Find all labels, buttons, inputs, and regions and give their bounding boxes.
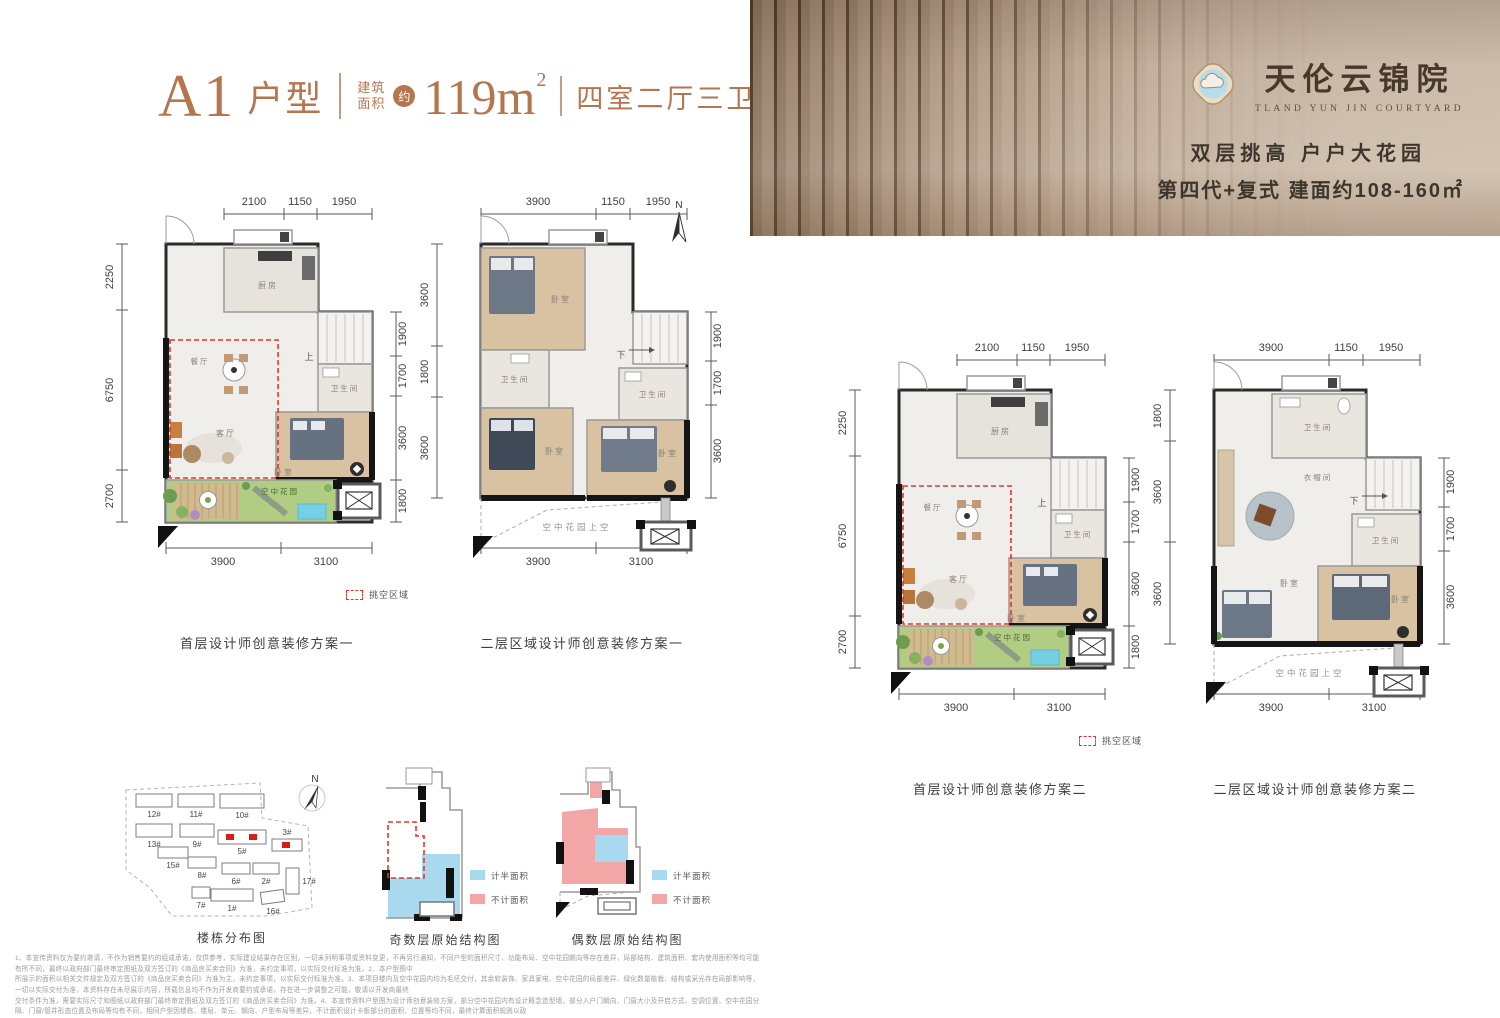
svg-text:3600: 3600: [1130, 572, 1142, 596]
svg-text:3900: 3900: [1259, 342, 1283, 354]
garden-label: 空中花园: [261, 486, 299, 496]
banner-tagline-1: 双层挑高 户户大花园: [1190, 137, 1426, 166]
svg-text:3900: 3900: [1259, 702, 1283, 714]
dim-left: 3600 1800 3600: [419, 244, 443, 498]
svg-text:1800: 1800: [1152, 404, 1164, 428]
svg-text:1#: 1#: [228, 904, 237, 913]
svg-text:1700: 1700: [397, 364, 409, 388]
bathroom-2-label: 卫生间: [1372, 535, 1401, 545]
site-plan: 12# 11# 10# 13# 9# 5# 3# 15# 8# 6# 2# 17…: [112, 760, 352, 946]
svg-text:计半面积: 计半面积: [491, 871, 529, 881]
living-label: 客厅: [949, 574, 969, 584]
site-plan-caption: 楼栋分布图: [112, 929, 352, 946]
stairs-up-label: 上: [304, 352, 313, 362]
area-label: 建筑 面积: [357, 80, 385, 113]
room-count-label: 四室二厅三卫: [576, 77, 756, 116]
svg-text:6#: 6#: [232, 877, 241, 886]
sky-garden: 空中花园: [896, 626, 1069, 668]
buildings: 12# 11# 10# 13# 9# 5# 3# 15# 8# 6# 2# 17…: [136, 794, 316, 916]
svg-text:1950: 1950: [1379, 342, 1403, 354]
unit-type-label: 户型: [247, 70, 323, 122]
dim-top: 2100 1150 1950: [224, 196, 372, 220]
void-legend: 挑空区域: [346, 588, 409, 601]
unit-body: 厨房 上 卫生间 餐厅 卧室 客厅: [891, 362, 1113, 694]
cloud-logo-icon: [1184, 55, 1242, 113]
brand-name: 天伦云锦院 TLAND YUN JIN COURTYARD: [1255, 54, 1464, 114]
svg-text:计半面积: 计半面积: [673, 871, 711, 881]
svg-text:3#: 3#: [283, 828, 292, 837]
svg-text:3100: 3100: [629, 556, 653, 568]
pool: [298, 504, 326, 519]
svg-text:3900: 3900: [526, 196, 550, 208]
svg-text:1150: 1150: [1334, 342, 1358, 354]
dim-right: 1900 1700 3600 1800: [1123, 458, 1142, 668]
floor-plan-4: 3900 1150 1950 1800 3600 3600 1900 1700 …: [1148, 338, 1468, 798]
svg-text:2250: 2250: [104, 265, 116, 289]
svg-text:16#: 16#: [266, 907, 280, 916]
plan-2-caption: 二层区域设计师创意装修方案一: [415, 633, 735, 652]
void-above-outline: [1214, 644, 1394, 690]
svg-text:2700: 2700: [104, 484, 116, 508]
bathroom-1-label: 卫生间: [501, 374, 530, 384]
even-floor-structure: 计半面积 不计面积 偶数层原始结构图: [540, 752, 715, 948]
odd-floor-structure: 计半面积 不计面积 奇数层原始结构图: [358, 752, 533, 948]
floor-plan-3: 2100 1150 1950 2250 6750 2700 1900 1700 …: [833, 338, 1153, 798]
site-compass: N: [299, 774, 325, 811]
svg-text:3600: 3600: [419, 436, 431, 460]
bedroom-1-label: 卧室: [551, 294, 571, 304]
svg-text:15#: 15#: [166, 861, 180, 870]
void-swatch: [346, 590, 363, 600]
even-floor-caption: 偶数层原始结构图: [540, 931, 715, 948]
void-outline: [388, 822, 424, 878]
svg-text:2700: 2700: [837, 630, 849, 654]
svg-text:2100: 2100: [975, 342, 999, 354]
banner-tagline-2: 第四代+复式 建面约108-160㎡: [1157, 174, 1464, 203]
garden-label: 空中花园: [994, 632, 1032, 642]
unit-body: 卫生间 衣帽间 下 卫生间 卧室 卧室: [1206, 362, 1429, 704]
dim-right: 1900 1700 3600 1800: [390, 312, 409, 522]
svg-text:2250: 2250: [837, 411, 849, 435]
dim-bottom: 3900 3100: [166, 542, 372, 568]
bedroom-2-label: 卧室: [1391, 594, 1411, 604]
pool: [1031, 650, 1059, 665]
svg-text:1700: 1700: [1445, 517, 1457, 541]
bedroom-label: 卧室: [274, 467, 294, 477]
highlighted-unit: [226, 834, 234, 840]
elevator: [420, 902, 454, 916]
svg-text:不计面积: 不计面积: [491, 895, 529, 905]
plan-3-caption: 首层设计师创意装修方案二: [833, 779, 1153, 798]
dim-right: 1900 1700 3600: [705, 312, 724, 498]
svg-text:12#: 12#: [147, 810, 161, 819]
entry-wedge: [891, 672, 911, 694]
floor-plan-3-drawing: 2100 1150 1950 2250 6750 2700 1900 1700 …: [833, 338, 1153, 722]
dim-left: 1800 3600 3600: [1152, 390, 1176, 644]
site-plan-drawing: 12# 11# 10# 13# 9# 5# 3# 15# 8# 6# 2# 17…: [112, 760, 352, 920]
unit-code: A1: [158, 66, 235, 126]
entry-wedge: [158, 526, 178, 548]
stairs-up-label: 上: [1037, 498, 1046, 508]
disclaimer-line: 1、本宣传资料仅为要约邀请，不作为销售要约的组成承诺，仅供参考，实际建设结果存在…: [15, 954, 763, 975]
highlighted-unit: [282, 842, 290, 848]
highlighted-unit: [249, 834, 257, 840]
svg-text:13#: 13#: [147, 840, 161, 849]
dim-left: 2250 6750 2700: [104, 244, 128, 522]
void-legend: 挑空区域: [1079, 734, 1142, 747]
svg-text:17#: 17#: [302, 877, 316, 886]
sky-garden: 空中花园: [163, 480, 336, 522]
unit-title-block: A1 户型 建筑 面积 约 119m2 四室二厅三卫: [158, 66, 756, 126]
svg-text:2100: 2100: [242, 196, 266, 208]
svg-text:1700: 1700: [1130, 510, 1142, 534]
svg-text:N: N: [311, 774, 318, 785]
void-above-label: 空中花园上空: [542, 522, 611, 532]
odd-floor-caption: 奇数层原始结构图: [358, 931, 533, 948]
flyer-page: A1 户型 建筑 面积 约 119m2 四室二厅三卫 天伦云锦院 TLAND Y…: [0, 0, 1500, 1018]
bathroom-1-label: 卫生间: [1304, 422, 1333, 432]
floor-plan-2: 3900 1150 1950 3600 1800 3600 1900 1700 …: [415, 192, 735, 652]
svg-text:1150: 1150: [288, 196, 312, 208]
svg-text:6750: 6750: [104, 378, 116, 402]
disclaimer-line: 所展示的面积以相关文件规定及双方签订的《商品房买卖合同》为准为主，未约定事项，以…: [15, 975, 763, 996]
dim-bottom: 3900 3100: [899, 688, 1105, 714]
bedroom-3-label: 卧室: [658, 448, 678, 458]
svg-text:1950: 1950: [646, 196, 670, 208]
svg-text:7#: 7#: [197, 901, 206, 910]
void-swatch: [1079, 736, 1096, 746]
svg-text:1950: 1950: [1065, 342, 1089, 354]
wardrobe: [1218, 450, 1234, 546]
svg-text:9#: 9#: [193, 840, 202, 849]
kitchen-label: 厨房: [991, 426, 1011, 436]
unit-body: 卧室 下 卫生间 卫生间 卧室 卧室: [473, 216, 696, 558]
unit-body: 厨房 上 卫生间 餐厅 卧室 客厅: [158, 216, 380, 548]
svg-text:1800: 1800: [1130, 635, 1142, 659]
void-above-label: 空中花园上空: [1275, 668, 1344, 678]
brand-title: 天伦云锦院: [1265, 54, 1455, 99]
svg-text:3100: 3100: [1362, 702, 1386, 714]
stairs-down-label: 下: [1349, 496, 1358, 506]
svg-text:3900: 3900: [526, 556, 550, 568]
svg-text:不计面积: 不计面积: [673, 895, 711, 905]
bedroom-2-label: 卧室: [545, 446, 565, 456]
even-floor-drawing: 计半面积 不计面积: [540, 752, 715, 922]
svg-text:5#: 5#: [238, 847, 247, 856]
elevator: [636, 498, 696, 550]
svg-text:3600: 3600: [1152, 582, 1164, 606]
elevator: [1369, 644, 1429, 696]
half-area-region: [595, 835, 628, 862]
svg-text:3600: 3600: [1445, 585, 1457, 609]
dining-label: 餐厅: [191, 357, 210, 366]
svg-text:2#: 2#: [262, 877, 271, 886]
living-label: 客厅: [216, 428, 236, 438]
entry-wedge: [473, 536, 493, 558]
svg-text:8#: 8#: [198, 871, 207, 880]
elevator: [1066, 626, 1113, 666]
svg-text:3600: 3600: [419, 283, 431, 307]
bathroom-2-label: 卫生间: [639, 389, 668, 399]
svg-text:3100: 3100: [314, 556, 338, 568]
svg-text:1900: 1900: [712, 324, 724, 348]
svg-text:1700: 1700: [712, 371, 724, 395]
floor-plan-1: 2100 1150 1950 2250 6750 2700 1900 1700 …: [100, 192, 420, 652]
dining-label: 餐厅: [924, 503, 943, 512]
void-above-outline: [481, 498, 661, 544]
svg-text:3600: 3600: [397, 426, 409, 450]
floor-plan-2-drawing: 3900 1150 1950 3600 1800 3600 1900 1700 …: [415, 192, 735, 576]
area-value: 119m2: [423, 70, 546, 122]
svg-text:1150: 1150: [1021, 342, 1045, 354]
dim-right: 1900 1700 3600: [1438, 458, 1457, 644]
divider: [339, 73, 341, 119]
approx-badge: 约: [393, 85, 415, 107]
dim-left: 2250 6750 2700: [837, 390, 861, 668]
disclaimer-text: 1、本宣传资料仅为要约邀请，不作为销售要约的组成承诺，仅供参考，实际建设结果存在…: [15, 954, 763, 1018]
dim-top: 3900 1150 1950: [1214, 342, 1420, 366]
divider: [560, 76, 562, 116]
floor-plan-4-drawing: 3900 1150 1950 1800 3600 3600 1900 1700 …: [1148, 338, 1468, 722]
svg-text:3600: 3600: [712, 439, 724, 463]
svg-text:3600: 3600: [1152, 480, 1164, 504]
brand-subtitle: TLAND YUN JIN COURTYARD: [1255, 104, 1464, 114]
brand-banner: 天伦云锦院 TLAND YUN JIN COURTYARD 双层挑高 户户大花园…: [750, 0, 1500, 236]
svg-text:1150: 1150: [601, 196, 625, 208]
cloakroom-label: 衣帽间: [1304, 472, 1333, 482]
svg-text:3900: 3900: [211, 556, 235, 568]
plan-1-caption: 首层设计师创意装修方案一: [100, 633, 420, 652]
svg-text:11#: 11#: [190, 810, 203, 819]
svg-text:3100: 3100: [1047, 702, 1071, 714]
plan-4-caption: 二层区域设计师创意装修方案二: [1148, 779, 1468, 798]
dim-top: 3900 1150 1950: [481, 196, 687, 220]
legend: 计半面积 不计面积: [470, 870, 529, 905]
odd-floor-drawing: 计半面积 不计面积: [358, 752, 533, 922]
svg-text:1800: 1800: [397, 489, 409, 513]
bedroom-label: 卧室: [1007, 613, 1027, 623]
svg-text:6750: 6750: [837, 524, 849, 548]
elevator: [333, 480, 380, 520]
bathroom-label: 卫生间: [331, 383, 360, 393]
svg-text:1950: 1950: [332, 196, 356, 208]
kitchen-label: 厨房: [258, 280, 278, 290]
legend: 计半面积 不计面积: [652, 870, 711, 905]
bathroom-label: 卫生间: [1064, 529, 1093, 539]
disclaimer-line: 交付条件为准，需要实际尺寸和图纸以政府部门最终审定图纸及双方签订的《商品房买卖合…: [15, 997, 763, 1018]
floor-plan-1-drawing: 2100 1150 1950 2250 6750 2700 1900 1700 …: [100, 192, 420, 576]
svg-text:1800: 1800: [419, 360, 431, 384]
dim-top: 2100 1150 1950: [957, 342, 1105, 366]
svg-text:1900: 1900: [1445, 470, 1457, 494]
brand-logo-row: 天伦云锦院 TLAND YUN JIN COURTYARD: [1184, 54, 1464, 114]
svg-text:3900: 3900: [944, 702, 968, 714]
entry-wedge: [1206, 682, 1226, 704]
bedroom-1-label: 卧室: [1280, 578, 1300, 588]
stairs-down-label: 下: [616, 350, 625, 360]
svg-text:10#: 10#: [235, 811, 249, 820]
svg-text:1900: 1900: [397, 322, 409, 346]
svg-text:1900: 1900: [1130, 468, 1142, 492]
